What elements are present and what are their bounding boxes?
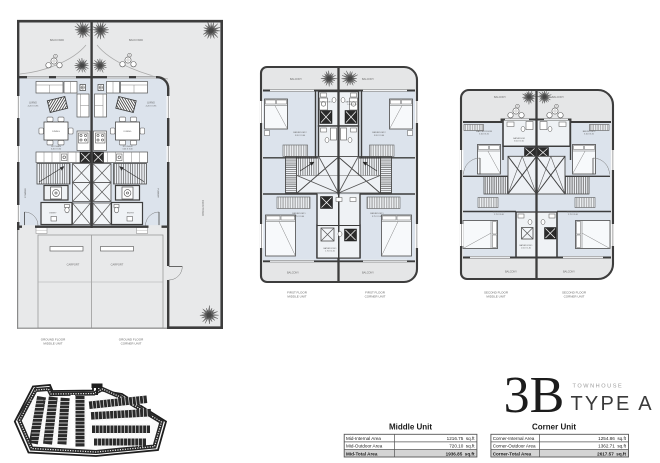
- svg-text:3.10 X 3.31: 3.10 X 3.31: [584, 134, 594, 136]
- svg-text:Corner Unit: Corner Unit: [532, 423, 576, 432]
- svg-text:2617.57 sq.ft: 2617.57 sq.ft: [597, 451, 626, 456]
- svg-text:Corner-Outdoor Area: Corner-Outdoor Area: [493, 444, 536, 449]
- svg-text:Corner-Internal Area: Corner-Internal Area: [493, 436, 535, 441]
- svg-text:Middle Unit: Middle Unit: [389, 423, 432, 432]
- svg-text:3.46 X 3.30: 3.46 X 3.30: [122, 148, 133, 150]
- svg-text:FRONTYARD: FRONTYARD: [201, 200, 205, 216]
- svg-text:CORNER UNIT: CORNER UNIT: [365, 295, 386, 299]
- svg-text:BEDROOM 1: BEDROOM 1: [370, 213, 384, 215]
- svg-text:LIVING: LIVING: [29, 103, 37, 105]
- svg-text:3.10 X 3.31: 3.10 X 3.31: [479, 134, 489, 136]
- svg-text:BALCONY: BALCONY: [362, 78, 374, 81]
- svg-text:POWDER: POWDER: [157, 188, 159, 198]
- svg-text:Mid-Total Area: Mid-Total Area: [346, 451, 378, 456]
- svg-text:1216.75 sq.ft: 1216.75 sq.ft: [447, 436, 476, 441]
- svg-text:BALCONY: BALCONY: [505, 271, 517, 274]
- svg-text:3B: 3B: [504, 367, 565, 424]
- svg-text:BALCONY: BALCONY: [563, 271, 575, 274]
- svg-text:3.20 X 3.60: 3.20 X 3.60: [295, 135, 306, 137]
- svg-text:BACKYARD: BACKYARD: [129, 38, 143, 42]
- svg-text:BEDROOM 1: BEDROOM 1: [292, 213, 306, 215]
- svg-text:3.05 X 1.60: 3.05 X 1.60: [514, 141, 524, 143]
- svg-text:3.20 X 3.60: 3.20 X 3.60: [374, 135, 385, 137]
- svg-text:BEDROOM 1: BEDROOM 1: [567, 212, 580, 214]
- svg-text:3.75 X 3.60: 3.75 X 3.60: [568, 214, 578, 216]
- svg-text:BACKYARD: BACKYARD: [50, 38, 64, 42]
- svg-text:TOWNHOUSE: TOWNHOUSE: [573, 384, 624, 390]
- svg-text:BATHROOM 1: BATHROOM 1: [323, 247, 337, 250]
- svg-text:1254.86 sq.ft: 1254.86 sq.ft: [598, 436, 627, 441]
- svg-text:BATHROOM 1: BATHROOM 1: [519, 244, 533, 247]
- svg-text:LIVING: LIVING: [147, 103, 155, 105]
- svg-text:POWDER: POWDER: [25, 188, 27, 198]
- svg-text:BATHROOM 2: BATHROOM 2: [320, 101, 332, 104]
- svg-text:4.20 X 3.95: 4.20 X 3.95: [146, 105, 157, 107]
- svg-text:DINING: DINING: [124, 131, 132, 133]
- svg-text:4.20 X 3.95: 4.20 X 3.95: [28, 105, 39, 107]
- svg-text:CORNER UNIT: CORNER UNIT: [121, 342, 142, 346]
- svg-text:BEDROOM 2: BEDROOM 2: [372, 132, 386, 134]
- svg-text:1362.71 sq.ft: 1362.71 sq.ft: [598, 444, 627, 449]
- svg-text:3.75 X 3.60: 3.75 X 3.60: [494, 214, 504, 216]
- svg-text:3.75 X 3.60: 3.75 X 3.60: [294, 216, 305, 218]
- svg-text:720.10 sq.ft: 720.10 sq.ft: [449, 444, 475, 449]
- svg-text:ENTRY: ENTRY: [127, 213, 135, 215]
- svg-text:MASTER ROOM: MASTER ROOM: [476, 130, 492, 133]
- svg-text:MIDDLE UNIT: MIDDLE UNIT: [43, 342, 62, 346]
- svg-text:CARPORT: CARPORT: [67, 263, 80, 267]
- svg-text:ENTRY: ENTRY: [49, 213, 57, 215]
- svg-text:BEDROOM 1: BEDROOM 1: [493, 212, 506, 214]
- svg-text:CARPORT: CARPORT: [111, 263, 124, 267]
- svg-text:BALCONY: BALCONY: [552, 96, 564, 99]
- svg-text:DINING: DINING: [52, 131, 60, 133]
- svg-text:Corner-Total Area: Corner-Total Area: [493, 451, 532, 456]
- svg-text:BALCONY: BALCONY: [290, 78, 302, 81]
- svg-text:TYPE A: TYPE A: [571, 393, 654, 415]
- svg-text:BALCONY: BALCONY: [287, 272, 299, 275]
- svg-text:Mid-Internal Area: Mid-Internal Area: [346, 436, 381, 441]
- svg-text:BEDROOM 3: BEDROOM 3: [583, 131, 596, 133]
- svg-text:2.05 X 1.40: 2.05 X 1.40: [521, 248, 531, 250]
- svg-text:BALCONY: BALCONY: [494, 96, 506, 99]
- svg-text:MIDDLE UNIT: MIDDLE UNIT: [486, 295, 505, 299]
- svg-text:Mid-Outdoor Area: Mid-Outdoor Area: [346, 444, 383, 449]
- svg-text:BATHROOM 2: BATHROOM 2: [345, 101, 359, 104]
- svg-text:1936.85 sq.ft: 1936.85 sq.ft: [446, 451, 475, 456]
- svg-text:1.60 X 2.20: 1.60 X 2.20: [347, 104, 357, 106]
- svg-text:3.46 X 3.30: 3.46 X 3.30: [51, 148, 62, 150]
- svg-text:BEDROOM 2: BEDROOM 2: [293, 132, 307, 134]
- svg-text:1.75 X 2.20: 1.75 X 2.20: [325, 251, 335, 253]
- svg-text:BALCONY: BALCONY: [362, 272, 374, 275]
- svg-text:3.75 X 3.60: 3.75 X 3.60: [372, 216, 383, 218]
- svg-text:CORNER UNIT: CORNER UNIT: [564, 295, 585, 299]
- svg-text:MIDDLE UNIT: MIDDLE UNIT: [287, 295, 306, 299]
- svg-text:BATHROOM: BATHROOM: [513, 137, 525, 140]
